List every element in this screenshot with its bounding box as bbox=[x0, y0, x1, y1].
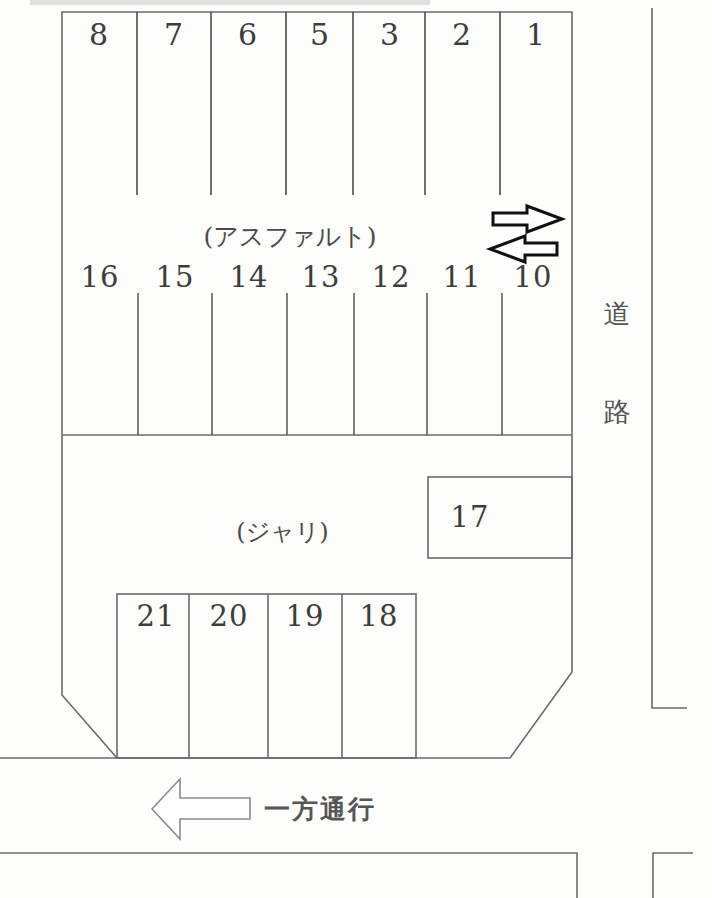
surface-asphalt-label: (アスファルト) bbox=[175, 220, 405, 253]
one-way-arrow-icon bbox=[152, 779, 250, 839]
road-label: 道 路 bbox=[597, 296, 637, 430]
road-label-char-1: 道 bbox=[604, 296, 631, 332]
parking-lot-diagram: 8 7 6 5 3 2 1 16 15 14 13 12 11 10 17 21… bbox=[0, 0, 712, 898]
stall-5-label: 5 bbox=[285, 20, 355, 50]
arrow-right-icon bbox=[493, 206, 562, 232]
stall-13-label: 13 bbox=[284, 263, 358, 292]
stall-14-label: 14 bbox=[212, 263, 286, 292]
diagram-lines bbox=[0, 0, 712, 898]
surface-gravel-label: (ジャリ) bbox=[210, 516, 355, 548]
stall-15-label: 15 bbox=[138, 263, 212, 292]
stall-2-label: 2 bbox=[427, 20, 497, 50]
bottom-right-block bbox=[653, 853, 693, 898]
arrow-left-icon bbox=[490, 236, 557, 262]
stall-3-label: 3 bbox=[355, 20, 425, 50]
stall-8-label: 8 bbox=[64, 20, 134, 50]
stall-1-label: 1 bbox=[501, 20, 571, 50]
stall-6-label: 6 bbox=[213, 20, 283, 50]
stall-11-label: 11 bbox=[425, 263, 499, 292]
stall-20-label: 20 bbox=[194, 602, 264, 631]
stall-17-label: 17 bbox=[440, 503, 500, 532]
stall-7-label: 7 bbox=[139, 20, 209, 50]
stall-dividers-middle-row bbox=[138, 293, 502, 435]
one-way-label: 一方通行 bbox=[264, 792, 424, 827]
road-label-char-2: 路 bbox=[604, 394, 631, 430]
bottom-left-block bbox=[0, 853, 577, 898]
stall-16-label: 16 bbox=[63, 263, 137, 292]
stall-21-label: 21 bbox=[121, 602, 191, 631]
stall-19-label: 19 bbox=[270, 602, 340, 631]
stall-12-label: 12 bbox=[354, 263, 428, 292]
stall-10-label: 10 bbox=[496, 263, 570, 292]
stall-18-label: 18 bbox=[344, 602, 414, 631]
road-outer-boundary bbox=[652, 8, 687, 708]
